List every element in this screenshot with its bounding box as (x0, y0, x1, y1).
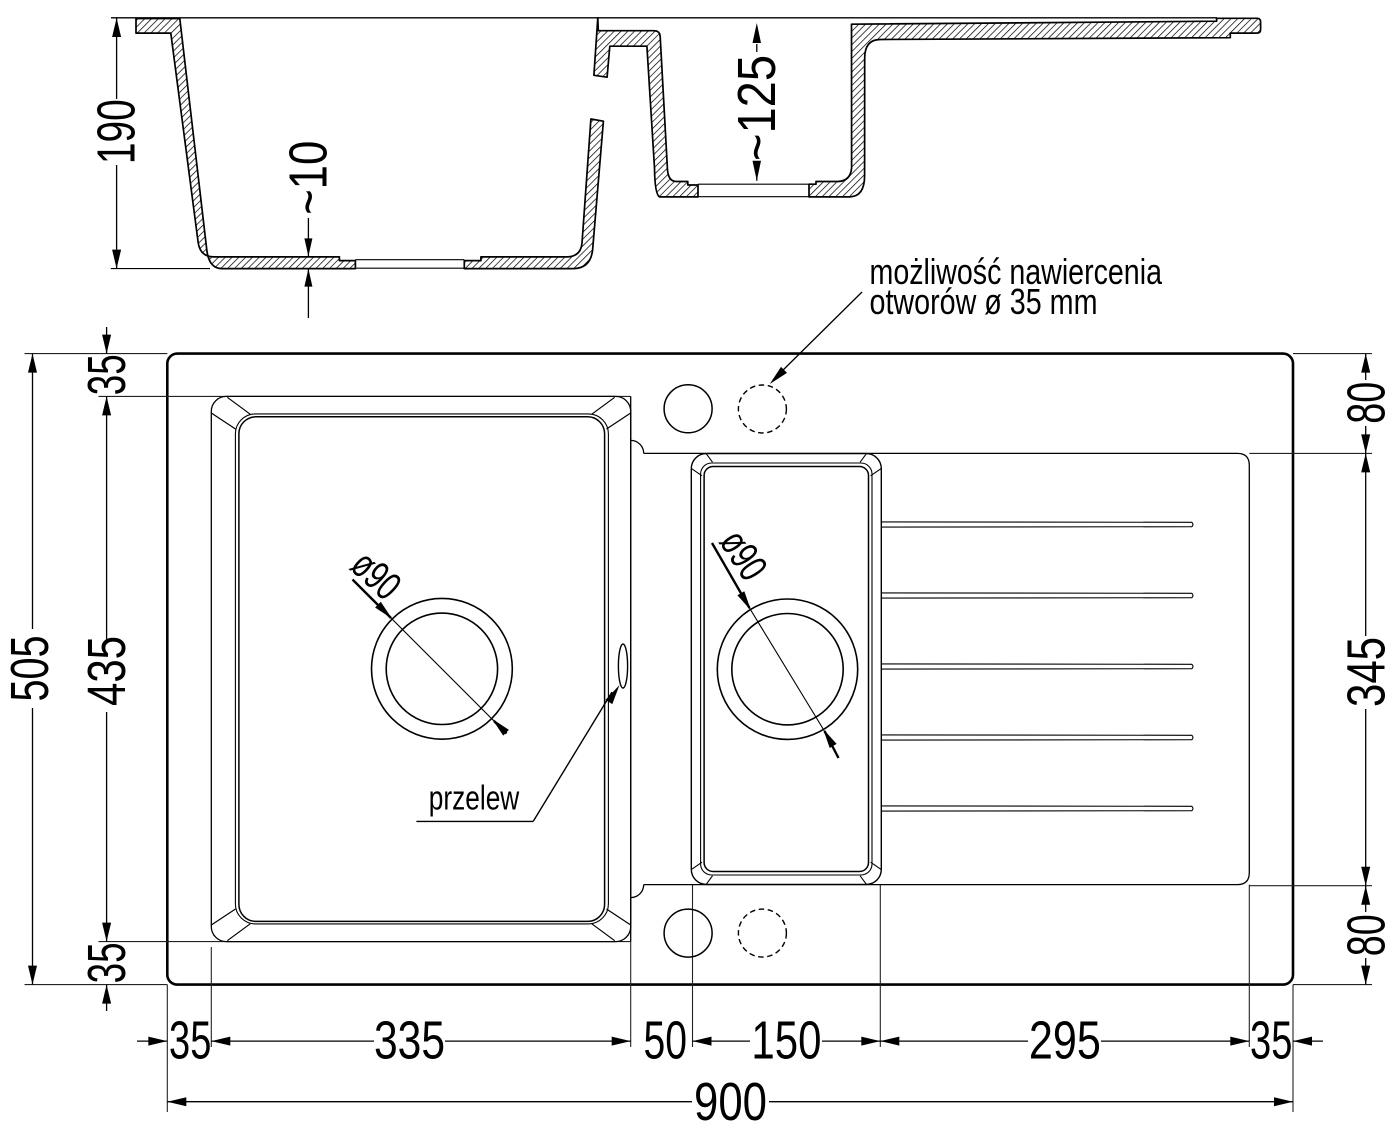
svg-text:435: 435 (77, 636, 137, 706)
svg-text:~125: ~125 (728, 55, 788, 161)
svg-text:80: 80 (1337, 382, 1397, 424)
svg-text:80: 80 (1337, 914, 1397, 956)
svg-text:35: 35 (1250, 1011, 1292, 1071)
svg-text:150: 150 (751, 1011, 821, 1071)
svg-text:900: 900 (694, 1073, 767, 1133)
svg-text:35: 35 (77, 942, 137, 983)
svg-text:335: 335 (374, 1011, 445, 1071)
svg-text:35: 35 (77, 354, 137, 395)
svg-text:505: 505 (0, 636, 60, 702)
svg-text:35: 35 (169, 1011, 211, 1071)
svg-text:ø90: ø90 (342, 541, 409, 608)
svg-text:50: 50 (643, 1011, 687, 1071)
svg-text:345: 345 (1337, 637, 1397, 707)
svg-text:295: 295 (1029, 1011, 1101, 1071)
svg-text:~10: ~10 (279, 141, 339, 215)
svg-text:190: 190 (87, 99, 147, 164)
svg-text:ø90: ø90 (711, 522, 776, 589)
svg-text:otworów ø 35 mm: otworów ø 35 mm (870, 281, 1098, 322)
svg-text:przelew: przelew (429, 779, 520, 818)
